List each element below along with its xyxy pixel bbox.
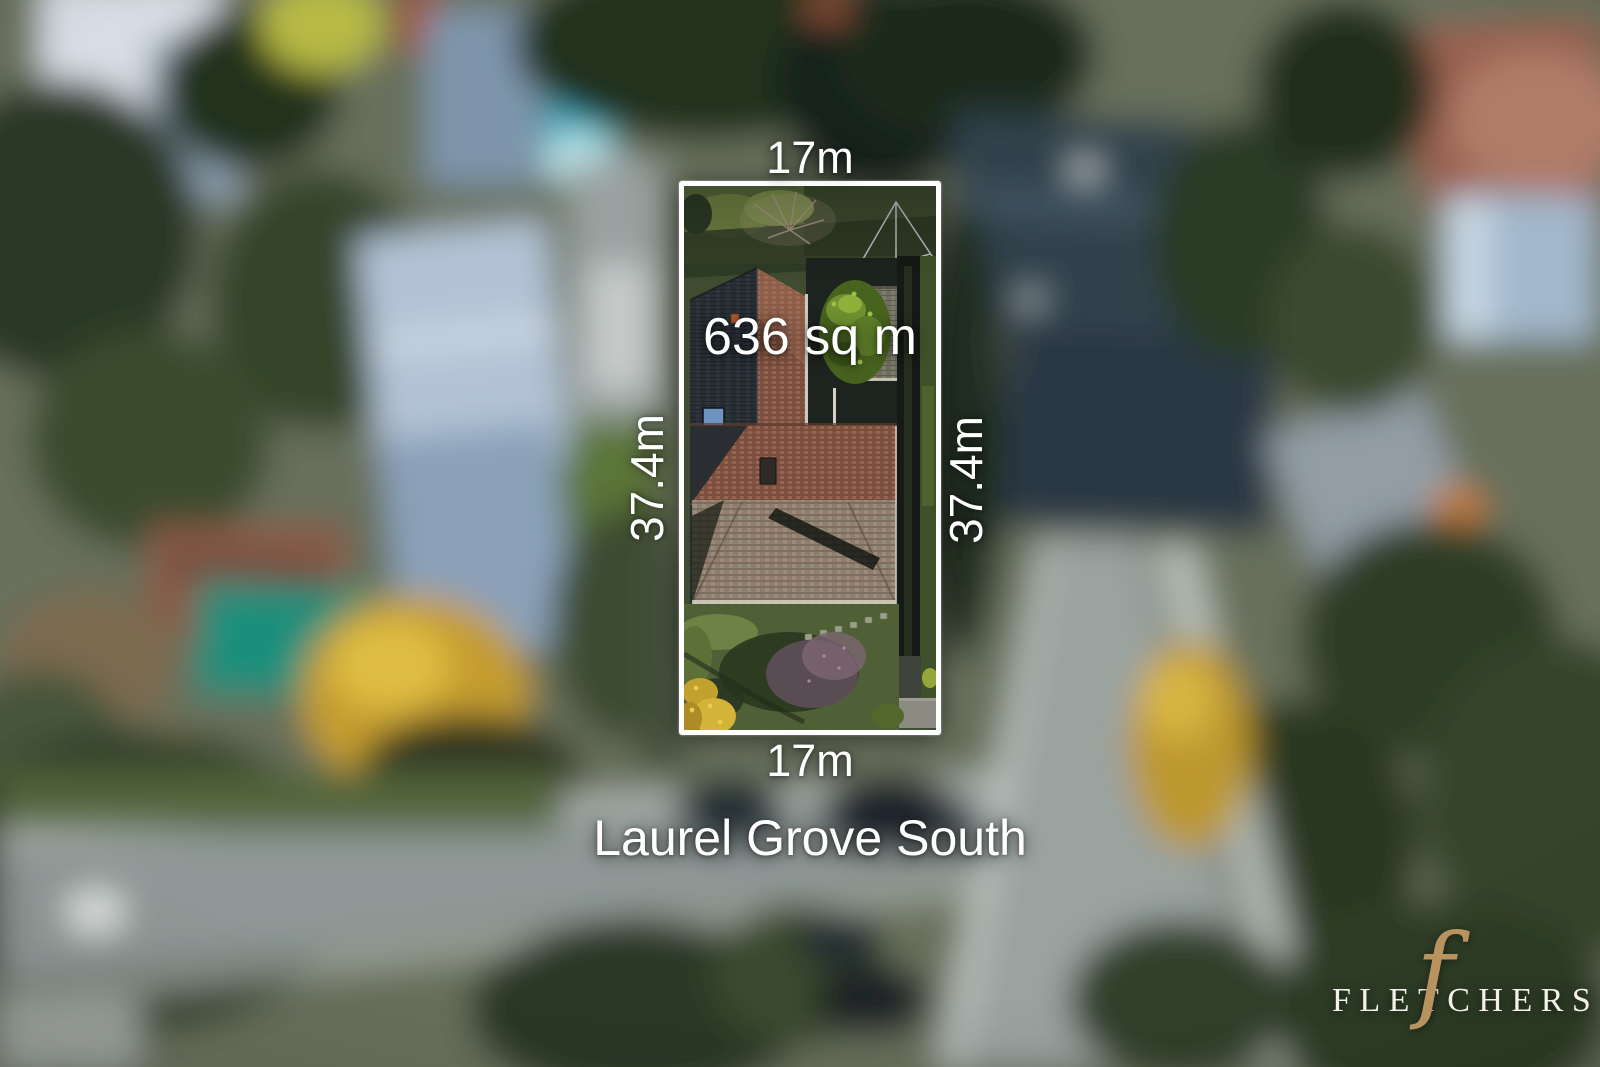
property-boundary-box: [679, 181, 941, 735]
depth-label-left: 37.4m: [623, 414, 671, 542]
frontage-label-top: 17m: [684, 134, 936, 181]
depth-label-right: 37.4m: [942, 416, 990, 544]
agency-logo: f FLETCHERS: [1332, 982, 1562, 1062]
land-area-label: 636 sq m: [635, 310, 985, 365]
street-name-label: Laurel Grove South: [460, 812, 1160, 865]
script-f-letter: f: [1416, 920, 1455, 1024]
agency-wordmark: FLETCHERS: [1332, 982, 1599, 1019]
wordmark-post: HERS: [1478, 982, 1599, 1019]
frontage-label-bottom: 17m: [684, 737, 936, 784]
aerial-marketing-image: 17m 636 sq m 37.4m 37.4m 17m Laurel Grov…: [0, 0, 1600, 1067]
